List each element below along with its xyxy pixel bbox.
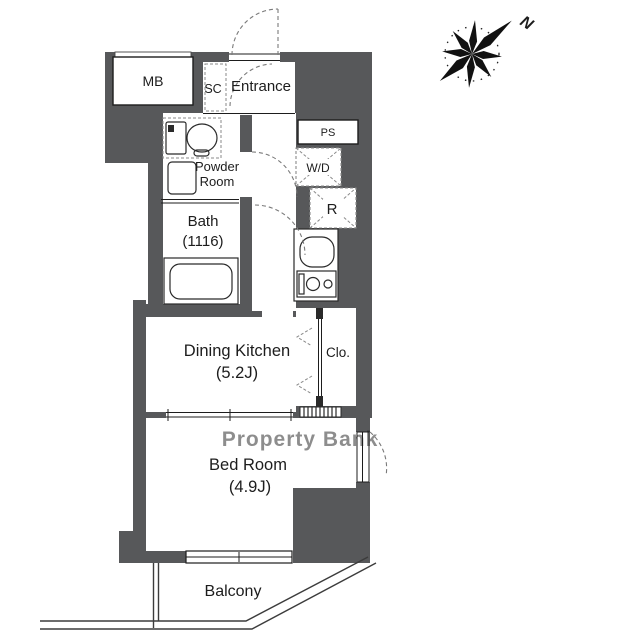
- mb-label: MB: [143, 73, 164, 89]
- toilet-button: [168, 125, 174, 132]
- compass-north-label: N: [517, 13, 536, 34]
- bath-label-2: (1116): [182, 233, 223, 250]
- r-label: R: [327, 201, 338, 218]
- dk-label-1: Dining Kitchen: [184, 342, 290, 360]
- wall-bedroom-right-bottom: [356, 482, 370, 490]
- hatched-sill: [300, 407, 341, 417]
- floor-plan-drawing: N Property Bank MB SC Entrance PS Powder…: [0, 0, 640, 639]
- entrance-door-arc: [232, 9, 278, 55]
- wd-label: W/D: [306, 161, 330, 175]
- bath-label-1: Bath: [188, 213, 219, 230]
- wall-left-upper: [148, 163, 163, 304]
- wall-bath-right: [240, 197, 252, 317]
- dk-label-2: (5.2J): [216, 364, 258, 382]
- watermark-text: Property Bank: [222, 428, 379, 451]
- wall-bottom-left-corner: [119, 531, 146, 563]
- balcony-label: Balcony: [205, 583, 262, 600]
- vanity-sink: [168, 162, 196, 194]
- powder-label-1: Powder: [195, 159, 240, 174]
- bedroom-label-1: Bed Room: [209, 456, 287, 474]
- floor-plan-page: N Property Bank MB SC Entrance PS Powder…: [0, 0, 640, 639]
- closet-label: Clo.: [326, 345, 350, 360]
- compass: N: [440, 13, 536, 88]
- ps-label: PS: [321, 127, 336, 139]
- closet-post-bottom: [316, 396, 323, 407]
- wall-left-corner-block: [105, 115, 163, 163]
- hallway-floor: [252, 113, 296, 311]
- bedroom-label-2: (4.9J): [229, 478, 271, 496]
- toilet-bowl: [187, 124, 217, 152]
- compass-star: [440, 20, 512, 88]
- sc-label: SC: [204, 82, 221, 96]
- kitchen-counter: [294, 229, 338, 301]
- wall-bottom-right-block: [293, 488, 370, 563]
- compass-arm-ne: [472, 21, 512, 54]
- entrance-label: Entrance: [231, 78, 291, 95]
- wall-left-lower: [133, 300, 146, 563]
- powder-label-2: Room: [200, 174, 235, 189]
- wall-powder-right: [240, 110, 252, 152]
- closet-post-top: [316, 308, 323, 319]
